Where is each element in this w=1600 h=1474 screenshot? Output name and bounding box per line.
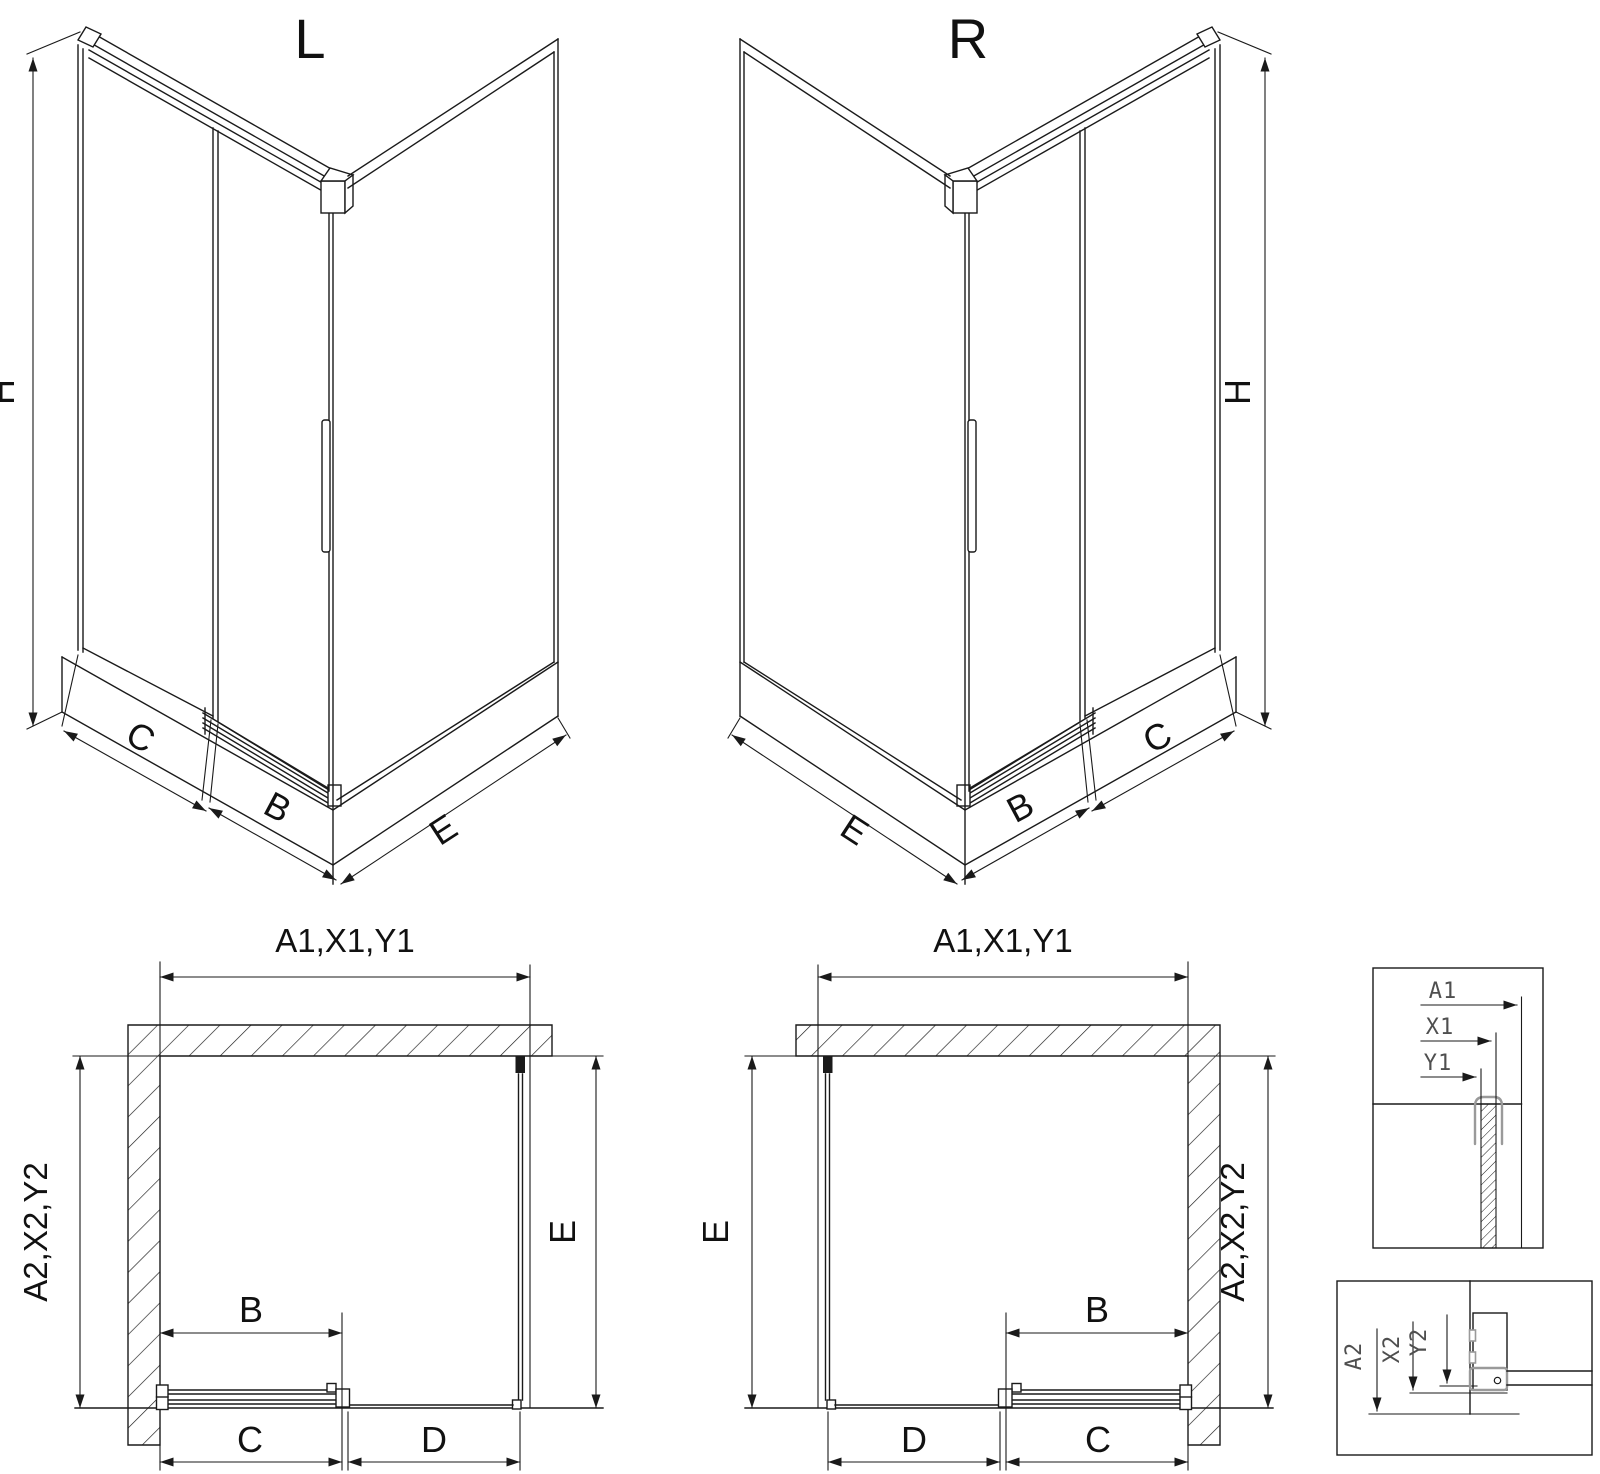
detail-label-x2: X2	[1380, 1335, 1405, 1364]
detail-label-a2: A2	[1342, 1342, 1367, 1371]
dim-label-a2x2y2-plan-left: A2,X2,Y2	[17, 1162, 54, 1301]
detail-label-x1: X1	[1426, 1015, 1455, 1040]
dim-label-c-plan-right: C	[1085, 1419, 1111, 1460]
dim-label-a1x1y1-plan-right: A1,X1,Y1	[933, 922, 1072, 959]
shower-enclosure-technical-drawing: L H C B E R H C B E A1,X1,Y1 A2,X2,Y2 E …	[0, 0, 1600, 1474]
title-left-variant: L	[294, 7, 325, 70]
dim-label-h-iso-left: H	[0, 379, 22, 405]
dim-label-b-plan-right: B	[1085, 1289, 1109, 1330]
drawing-sheet: L H C B E R H C B E A1,X1,Y1 A2,X2,Y2 E …	[0, 0, 1600, 1474]
dim-label-b-plan-left: B	[239, 1289, 263, 1330]
sheet-background	[0, 0, 1600, 1474]
detail-label-y1: Y1	[1424, 1051, 1453, 1076]
fixing-screw-icon	[1494, 1377, 1500, 1383]
dim-label-a2x2y2-plan-right: A2,X2,Y2	[1214, 1162, 1251, 1301]
dim-label-e-plan-right: E	[695, 1220, 736, 1244]
detail-label-y2: Y2	[1407, 1328, 1432, 1357]
glass-section-hatched	[1481, 1104, 1496, 1248]
title-right-variant: R	[948, 7, 988, 70]
dim-label-d-plan-right: D	[901, 1419, 927, 1460]
dim-label-c-plan-left: C	[237, 1419, 263, 1460]
dim-label-e-plan-left: E	[542, 1220, 583, 1244]
dim-label-d-plan-left: D	[421, 1419, 447, 1460]
dim-label-a1x1y1-plan-left: A1,X1,Y1	[275, 922, 414, 959]
detail-label-a1: A1	[1429, 979, 1458, 1004]
dim-label-h-iso-right: H	[1217, 379, 1258, 405]
